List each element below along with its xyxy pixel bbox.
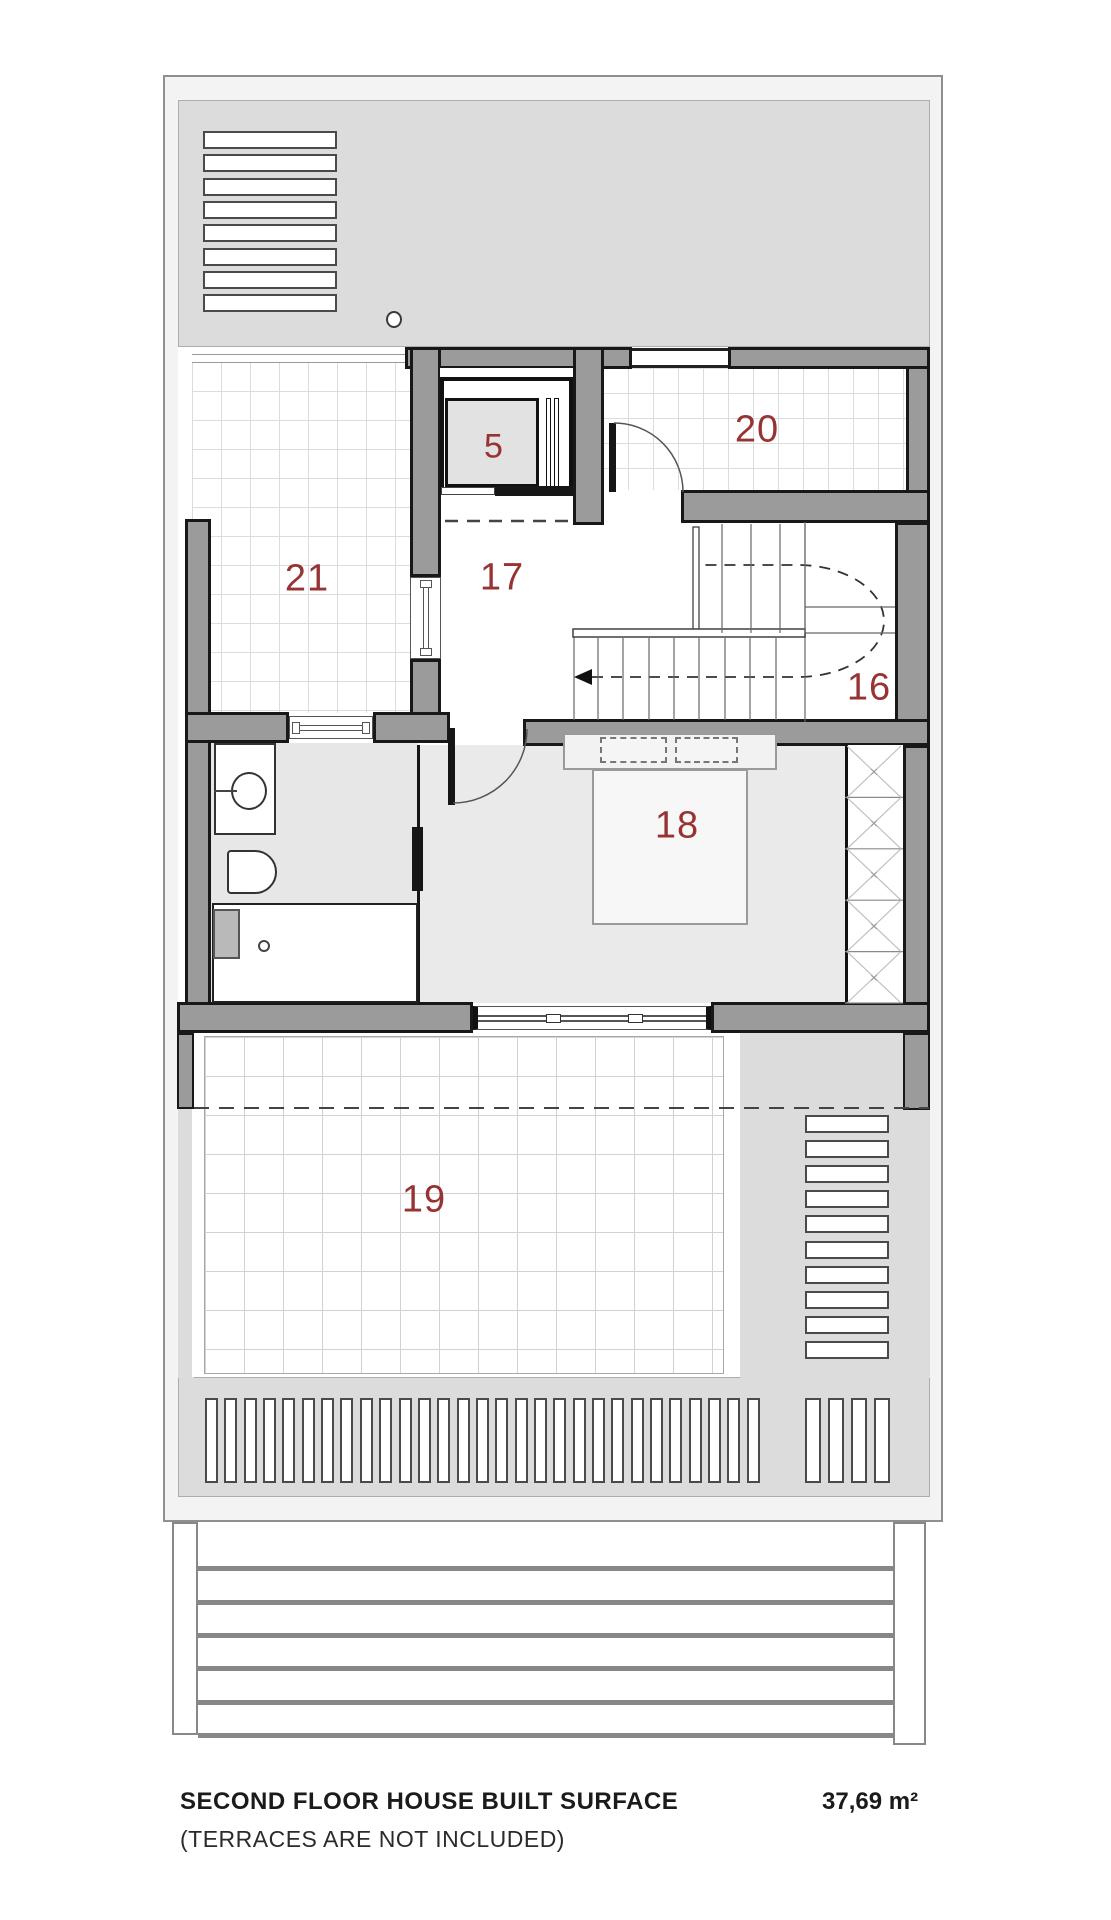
louver-slat [669, 1398, 682, 1483]
wall-bottom-left [177, 1002, 473, 1033]
louver-slat [203, 201, 337, 219]
louver-slat [805, 1215, 889, 1233]
louver-row-bottom-left [205, 1398, 765, 1483]
room-label-5: 5 [484, 428, 504, 467]
louver-slat [805, 1291, 889, 1309]
wall-elevator-right [573, 347, 604, 525]
deck-plank-line [198, 1566, 893, 1571]
louver-slat [321, 1398, 334, 1483]
elevator-door-leaf [546, 398, 551, 487]
louver-slat [828, 1398, 844, 1483]
room-label-21: 21 [285, 558, 329, 601]
wall-terrace21-left [185, 519, 211, 715]
louver-slat [244, 1398, 257, 1483]
louver-slat [203, 131, 337, 149]
footer-subtitle: (TERRACES ARE NOT INCLUDED) [180, 1826, 565, 1853]
louver-slat [203, 271, 337, 289]
wall-elevator-left [410, 347, 441, 577]
louver-slat [805, 1398, 821, 1483]
louver-slat [203, 154, 337, 172]
louver-slat [805, 1316, 889, 1334]
louver-slat [282, 1398, 295, 1483]
window-sash [298, 725, 366, 731]
window-21-17 [410, 577, 441, 659]
shower-column [213, 909, 240, 959]
louver-slat [805, 1241, 889, 1259]
louver-slat [805, 1165, 889, 1183]
louver-slat [263, 1398, 276, 1483]
sliding-rail [478, 1020, 706, 1022]
wall-bottom-right [711, 1002, 930, 1033]
louver-slat [611, 1398, 624, 1483]
sliding-handle [546, 1014, 561, 1023]
elevator-sill-thin [441, 487, 495, 495]
wall-bath-top-a [185, 712, 289, 743]
louver-slat [476, 1398, 489, 1483]
window-cap [420, 648, 432, 656]
louver-slat [851, 1398, 867, 1483]
louver-slat [379, 1398, 392, 1483]
louver-slat [553, 1398, 566, 1483]
louver-slat [747, 1398, 760, 1483]
louver-slat [203, 248, 337, 266]
louver-slat [203, 224, 337, 242]
toilet [227, 850, 277, 894]
louver-slat [515, 1398, 528, 1483]
louver-slat [805, 1266, 889, 1284]
louver-slat [203, 294, 337, 312]
louver-slat [203, 178, 337, 196]
floor-plan-canvas: ××××× 5 20 21 17 16 18 19 SECOND FLOOR H… [0, 0, 1111, 1920]
wall-left-stub-21 [410, 659, 441, 716]
room-label-18: 18 [655, 805, 699, 848]
elevator-door-leaf [554, 398, 559, 487]
door-leaf-room20 [609, 423, 616, 492]
louver-stack-right [805, 1115, 889, 1365]
footer-title: SECOND FLOOR HOUSE BUILT SURFACE [180, 1788, 678, 1816]
window-room20-top [632, 348, 728, 368]
terrace-21-top-opening [192, 354, 410, 363]
louver-slat [805, 1140, 889, 1158]
louver-slat [573, 1398, 586, 1483]
louver-slat [708, 1398, 721, 1483]
louver-slat [689, 1398, 702, 1483]
sliding-handle [628, 1014, 643, 1023]
wall-top-right [728, 347, 930, 369]
louver-slat [650, 1398, 663, 1483]
deck-post-right [893, 1522, 926, 1745]
louver-slat [457, 1398, 470, 1483]
deck-plank-line [198, 1733, 893, 1738]
wall-right-stairs [895, 522, 930, 722]
deck-plank-line [198, 1666, 893, 1671]
window-cap [420, 580, 432, 588]
bed-headboard [563, 733, 777, 770]
wall-right-bedroom [903, 745, 930, 1005]
louver-slat [727, 1398, 740, 1483]
deck-plank-line [198, 1600, 893, 1605]
louver-slat [302, 1398, 315, 1483]
deck-post-left [172, 1522, 198, 1735]
louver-row-bottom-right [805, 1398, 893, 1483]
wardrobe [845, 745, 903, 1003]
window-cap [362, 722, 370, 734]
louver-slat [805, 1341, 889, 1359]
louver-slat [592, 1398, 605, 1483]
roof-drain-circle [386, 311, 402, 328]
window-sash [423, 586, 429, 652]
louver-slat [205, 1398, 218, 1483]
wall-bath-left [185, 740, 211, 1005]
room-label-20: 20 [735, 409, 779, 452]
shower-drain [258, 940, 270, 952]
louver-slat [340, 1398, 353, 1483]
room-label-16: 16 [847, 667, 891, 710]
sliding-window-bedroom [473, 1006, 711, 1030]
louver-slat [631, 1398, 644, 1483]
terrace-19-floor [204, 1036, 724, 1374]
elevator-sill [495, 486, 573, 496]
wall-stub-bottom-right [903, 1033, 930, 1110]
louver-slat [399, 1398, 412, 1483]
bed-pillow [675, 737, 738, 763]
wall-room20-bottom [681, 490, 930, 523]
terrace-21-floor [192, 362, 412, 713]
deck-plank-line [198, 1633, 893, 1638]
door-leaf-bathroom [412, 827, 423, 891]
louver-slat [418, 1398, 431, 1483]
window-bathroom [289, 716, 373, 739]
deck-planks [198, 1522, 893, 1745]
sink-basin [231, 772, 267, 810]
shower-tray [212, 903, 418, 1003]
deck-plank-line [198, 1700, 893, 1705]
louver-slat [534, 1398, 547, 1483]
louver-slat [437, 1398, 450, 1483]
footer-area-value: 37,69 m² [822, 1788, 918, 1816]
wall-bath-top-b [373, 712, 450, 743]
louver-slat [360, 1398, 373, 1483]
louver-slat [874, 1398, 890, 1483]
room-label-17: 17 [480, 557, 524, 600]
louver-slat [224, 1398, 237, 1483]
room-label-19: 19 [402, 1179, 446, 1222]
louver-stack-top-left [203, 131, 337, 317]
window-cap [292, 722, 300, 734]
louver-slat [805, 1190, 889, 1208]
door-leaf-bedroom [448, 728, 455, 805]
sliding-rail [478, 1015, 706, 1017]
louver-slat [805, 1115, 889, 1133]
louver-slat [495, 1398, 508, 1483]
bed-pillow [600, 737, 667, 763]
wall-stub-bottom-left [177, 1033, 194, 1109]
